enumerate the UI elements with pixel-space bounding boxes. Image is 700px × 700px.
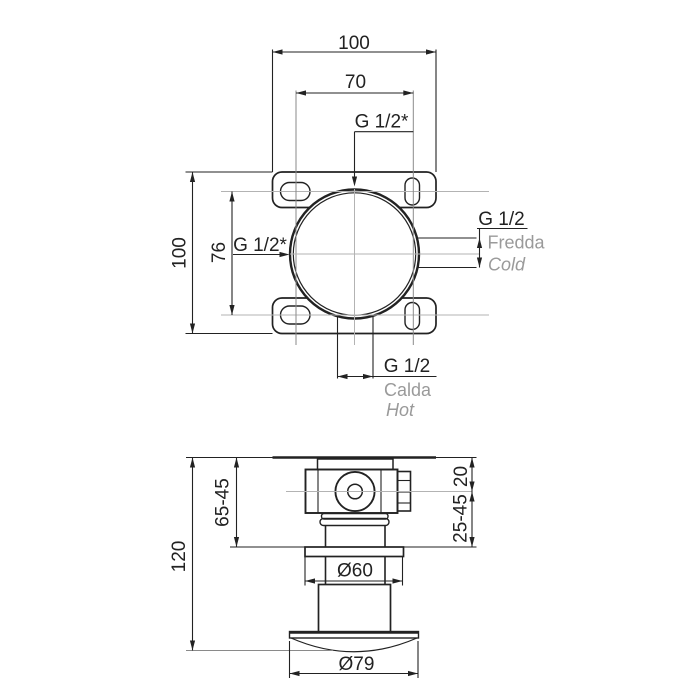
slot-bottom-right [405, 303, 420, 330]
dimension-escutcheon-diameter-79: Ø79 [290, 641, 419, 678]
port-callout-left: G 1/2* [233, 235, 290, 257]
cold-thread-label: G 1/2 [478, 209, 524, 230]
cold-label-italian: Fredda [487, 233, 545, 253]
hot-thread-label: G 1/2 [384, 356, 430, 377]
cold-inlet-callout: G 1/2 Fredda Cold [417, 209, 545, 275]
dim-label-plate-to-axis: 20 [451, 466, 472, 487]
dim-label-depth-adjust: 65-45 [213, 478, 234, 527]
flange-disc [305, 547, 404, 557]
dimension-axis-to-flange-25-45: 25-45 [404, 492, 477, 548]
dim-label-depth-total: 120 [169, 541, 190, 573]
hot-label-english: Hot [386, 400, 415, 420]
mixer-valve-technical-drawing: 100 70 100 76 G 1/2* [0, 0, 700, 700]
dimension-plate-to-axis-20: 20 [451, 458, 475, 492]
dimension-ports-70: 70 [296, 72, 413, 96]
dimension-depth-120: 120 [169, 458, 333, 651]
body-backplate [318, 459, 394, 470]
cold-label-english: Cold [488, 255, 526, 275]
dim-label-slot-spacing: 76 [209, 242, 230, 263]
dimension-slots-76: 76 [209, 192, 235, 316]
dimension-depth-65-45: 65-45 [213, 458, 306, 548]
hot-inlet-callout: G 1/2 Calda Hot [338, 316, 437, 420]
technical-drawing-page: 100 70 100 76 G 1/2* [0, 0, 700, 700]
escutcheon-sleeve [319, 585, 391, 633]
front-view: 100 70 100 76 G 1/2* [170, 33, 546, 420]
port-top-label: G 1/2* [355, 112, 409, 133]
port-callout-top: G 1/2* [352, 112, 413, 187]
dim-label-escutcheon-diameter: Ø79 [339, 654, 375, 675]
port-left-label: G 1/2* [233, 235, 287, 256]
dim-label-height: 100 [170, 237, 191, 269]
dim-label-width: 100 [338, 33, 370, 54]
dim-label-axis-to-flange: 25-45 [451, 494, 472, 543]
side-view: 120 65-45 20 25-45 [169, 458, 477, 679]
escutcheon-plate [290, 632, 419, 652]
dimension-flange-diameter-60: Ø60 [305, 557, 403, 586]
hot-label-italian: Calda [384, 380, 432, 400]
dim-label-port-spacing: 70 [345, 72, 366, 93]
dim-label-flange-diameter: Ø60 [337, 561, 373, 582]
